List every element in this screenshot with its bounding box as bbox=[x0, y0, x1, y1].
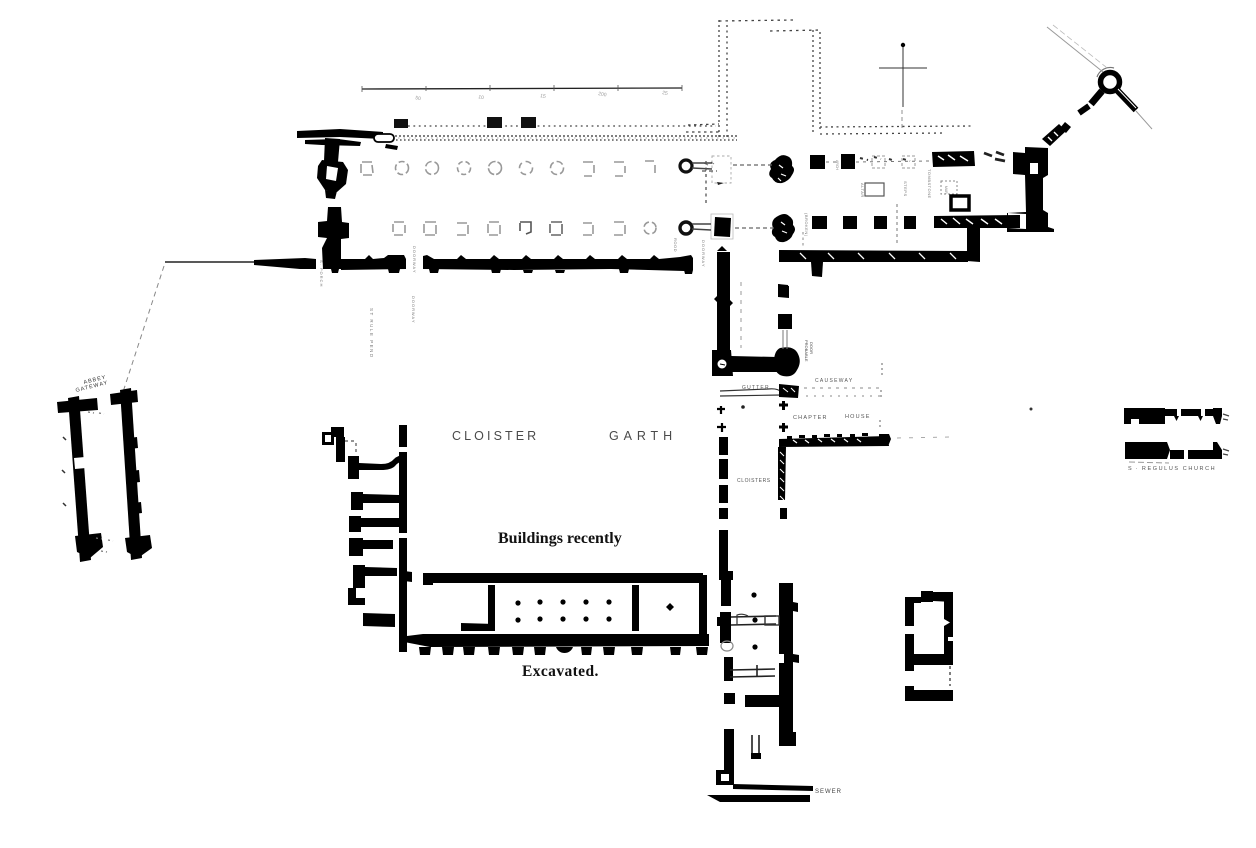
svg-text:ALTAR: ALTAR bbox=[860, 183, 865, 198]
svg-text:CLOISTER: CLOISTER bbox=[452, 429, 539, 443]
svg-text:CLOISTERS: CLOISTERS bbox=[737, 478, 771, 484]
svg-text:(BROKEN): (BROKEN) bbox=[804, 213, 809, 237]
svg-text:Excavated.: Excavated. bbox=[522, 663, 599, 680]
svg-text:STEPS: STEPS bbox=[903, 181, 908, 197]
svg-text:S · REGULUS CHURCH: S · REGULUS CHURCH bbox=[1128, 466, 1216, 472]
svg-text:DOORWAY: DOORWAY bbox=[411, 296, 416, 324]
svg-text:ST RULE PEND: ST RULE PEND bbox=[369, 308, 374, 359]
svg-text:CHAPTER: CHAPTER bbox=[793, 415, 828, 421]
svg-text:TOMBSTONE: TOMBSTONE bbox=[927, 169, 932, 199]
svg-text:SEWER: SEWER bbox=[815, 789, 842, 795]
svg-text:PROBABLE: PROBABLE bbox=[804, 340, 809, 362]
svg-text:GARTH: GARTH bbox=[609, 429, 677, 443]
svg-text:CAUSEWAY: CAUSEWAY bbox=[815, 378, 853, 384]
svg-text:DOORWAY: DOORWAY bbox=[412, 246, 417, 274]
svg-text:MAR: MAR bbox=[944, 186, 948, 194]
svg-text:Buildings recently: Buildings recently bbox=[498, 530, 622, 547]
svg-text:GUTTER: GUTTER bbox=[742, 385, 770, 391]
svg-text:DOORWAY: DOORWAY bbox=[701, 240, 706, 268]
svg-text:HOUSE: HOUSE bbox=[845, 414, 871, 420]
svg-text:ARCH: ARCH bbox=[835, 160, 839, 170]
svg-text:DOOR: DOOR bbox=[809, 342, 814, 354]
svg-text:ROOD: ROOD bbox=[673, 238, 678, 252]
svg-text:S. PORCH: S. PORCH bbox=[319, 260, 324, 287]
